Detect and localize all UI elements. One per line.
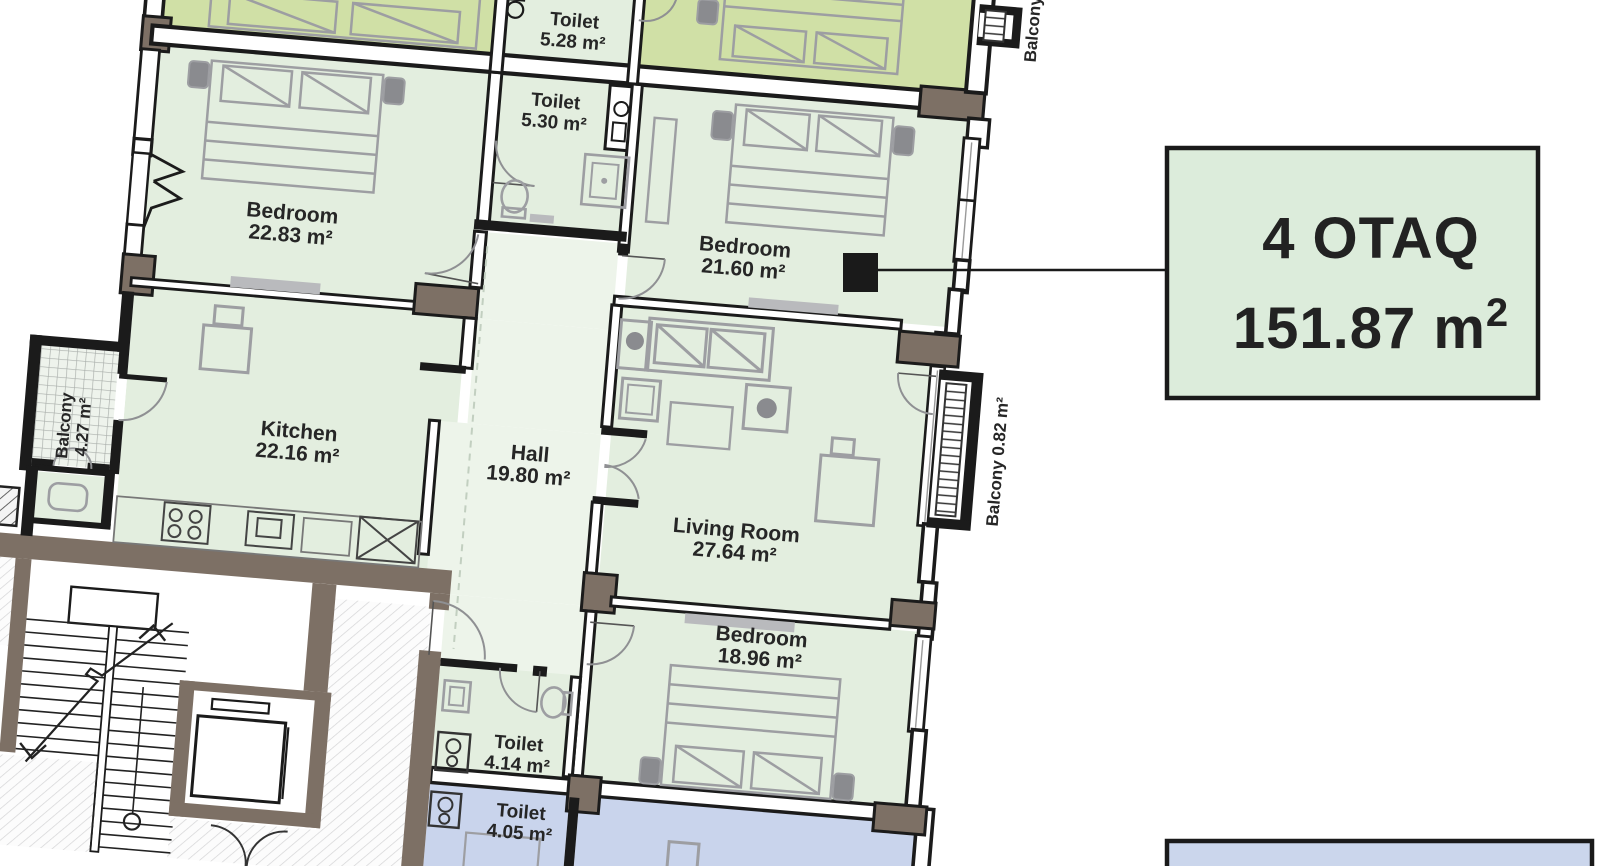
svg-text:Kitchen22.16 m²: Kitchen22.16 m²	[254, 417, 342, 469]
svg-text:Toilet4.05 m²: Toilet4.05 m²	[486, 799, 555, 846]
svg-text:Bedroom18.96 m²: Bedroom18.96 m²	[713, 622, 809, 675]
svg-text:Toilet5.30 m²: Toilet5.30 m²	[520, 89, 589, 136]
svg-text:Toilet4.14 m²: Toilet4.14 m²	[484, 731, 553, 778]
svg-text:4 OTAQ: 4 OTAQ	[1262, 206, 1480, 271]
svg-text:Balcony4.27 m²: Balcony4.27 m²	[52, 391, 95, 461]
svg-text:Toilet5.28 m²: Toilet5.28 m²	[539, 8, 608, 55]
svg-text:151.87 m2: 151.87 m2	[1233, 291, 1509, 361]
svg-text:Bedroom22.83 m²: Bedroom22.83 m²	[244, 198, 340, 251]
svg-text:Bedroom21.60 m²: Bedroom21.60 m²	[696, 232, 792, 285]
